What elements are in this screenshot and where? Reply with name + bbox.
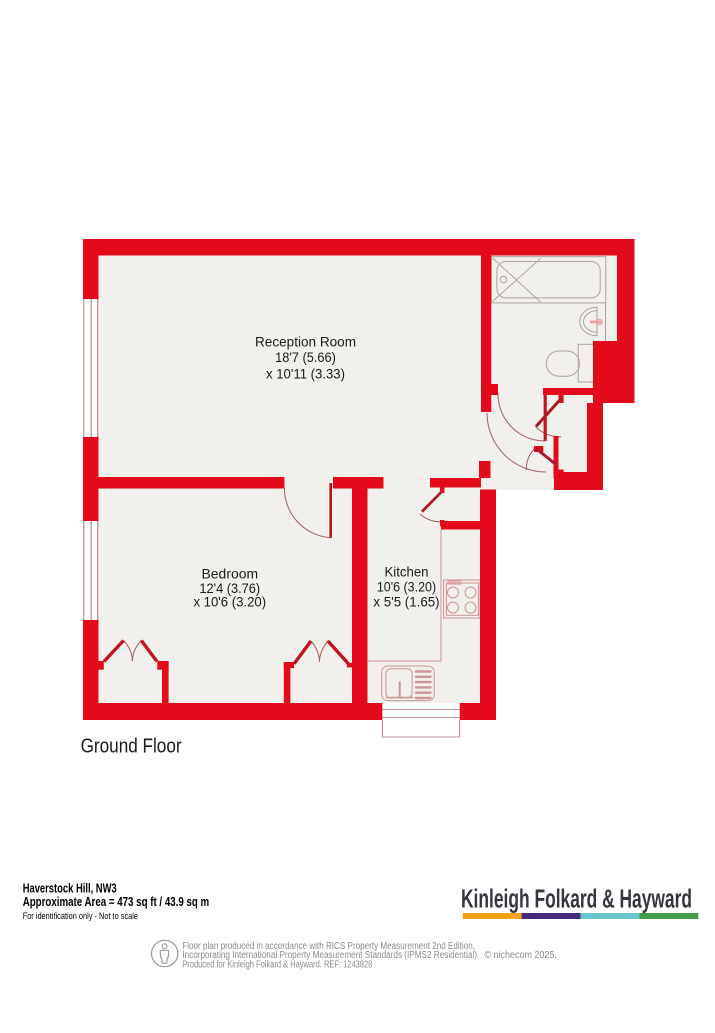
svg-text:10'6 (3.20): 10'6 (3.20) (377, 578, 436, 594)
svg-text:Kinleigh Folkard & Hayward: Kinleigh Folkard & Hayward (461, 885, 692, 913)
svg-text:18'7 (5.66): 18'7 (5.66) (275, 349, 336, 365)
svg-text:x 10'6 (3.20): x 10'6 (3.20) (193, 593, 266, 609)
svg-text:For identification only - Not: For identification only - Not to scale (23, 911, 138, 922)
svg-text:Approximate Area = 473 sq ft /: Approximate Area = 473 sq ft / 43.9 sq m (23, 894, 210, 909)
svg-text:x 10'11 (3.33): x 10'11 (3.33) (266, 365, 345, 381)
svg-text:© nichecom 2025.: © nichecom 2025. (485, 950, 557, 961)
svg-text:x 5'5 (1.65): x 5'5 (1.65) (373, 593, 439, 609)
svg-text:Produced for Kinleigh Folkard: Produced for Kinleigh Folkard & Hayward.… (182, 959, 372, 970)
svg-text:Reception Room: Reception Room (255, 334, 356, 350)
svg-text:Ground Floor: Ground Floor (81, 736, 182, 758)
svg-text:Kitchen: Kitchen (384, 563, 428, 579)
